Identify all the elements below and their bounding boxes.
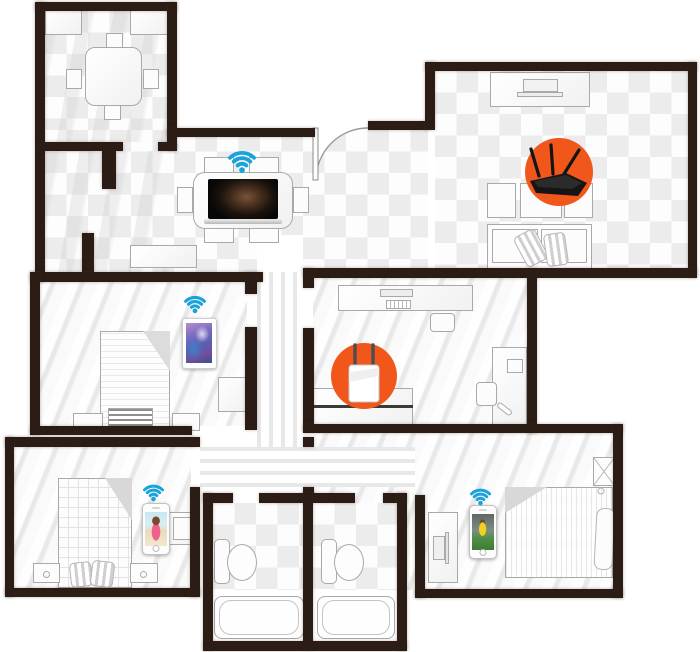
wall xyxy=(303,328,314,432)
wall-stub xyxy=(102,151,116,189)
wifi-icon xyxy=(181,292,209,314)
kitchen-table xyxy=(85,47,142,106)
phone-screen xyxy=(472,514,494,550)
tv-base xyxy=(517,92,563,97)
wall-stub xyxy=(303,437,314,447)
laptop-base xyxy=(204,219,282,224)
dining-chair xyxy=(204,228,234,243)
tablet-screen xyxy=(186,323,212,363)
wall xyxy=(35,2,177,11)
wall xyxy=(158,142,177,151)
wardrobe xyxy=(593,457,615,497)
wall xyxy=(190,437,200,447)
bedroom-desk xyxy=(218,377,246,412)
kitchen-chair xyxy=(143,69,159,89)
wall xyxy=(425,62,697,71)
phone-speaker xyxy=(152,507,160,509)
wall xyxy=(303,493,313,650)
wifi-router[interactable] xyxy=(526,140,592,202)
bed-fold xyxy=(143,331,170,371)
wall xyxy=(5,588,200,597)
office-chair xyxy=(430,313,455,332)
dining-sideboard xyxy=(130,245,197,268)
wall xyxy=(303,268,314,288)
dining-chair xyxy=(293,187,309,213)
wall xyxy=(303,268,697,278)
bathtub-inner xyxy=(219,600,299,635)
wifi-icon xyxy=(224,146,260,174)
wall xyxy=(30,272,263,282)
tv xyxy=(433,536,445,560)
bed-pillow xyxy=(69,561,93,588)
phone-home-button xyxy=(153,545,160,552)
tv-base xyxy=(445,532,449,564)
bathtub-inner xyxy=(322,600,390,635)
wall xyxy=(203,493,213,650)
wall xyxy=(203,641,407,651)
wall xyxy=(203,493,233,503)
phone-screen xyxy=(145,512,167,546)
armchair xyxy=(487,183,516,218)
laptop xyxy=(204,179,282,225)
toilet-bowl xyxy=(334,544,364,581)
wall xyxy=(368,121,428,130)
toilet-bowl xyxy=(227,544,257,581)
wall xyxy=(30,272,40,435)
laptop-screen xyxy=(208,179,278,219)
wall xyxy=(167,128,315,137)
tablet xyxy=(182,318,217,369)
bed-fold xyxy=(505,487,547,513)
kitchen-chair xyxy=(104,105,121,120)
wall xyxy=(415,495,425,598)
dining-chair xyxy=(177,187,193,213)
wall xyxy=(5,437,14,597)
wall xyxy=(38,142,123,151)
wall-stub xyxy=(82,233,94,274)
side-chair xyxy=(476,382,497,406)
sofa-cushion xyxy=(543,232,569,268)
wall xyxy=(303,424,623,433)
wall xyxy=(30,426,192,435)
bed-pillow xyxy=(90,560,116,589)
nightstand-handle xyxy=(43,571,50,578)
hallway-horizontal-floor xyxy=(200,447,415,487)
wall xyxy=(425,62,435,130)
kitchen-counter xyxy=(45,10,82,35)
wall xyxy=(415,589,623,598)
wall xyxy=(190,487,200,597)
smartphone-beach xyxy=(142,503,170,555)
wall xyxy=(245,272,257,294)
wifi-icon xyxy=(467,485,494,506)
wall xyxy=(613,424,623,598)
kitchen-chair xyxy=(66,69,82,89)
dining-chair xyxy=(249,228,279,243)
phone-home-button xyxy=(480,549,487,556)
kitchen-counter xyxy=(130,10,168,35)
wall xyxy=(688,62,697,277)
wall xyxy=(313,493,355,503)
door-swing xyxy=(310,118,374,188)
office-monitor xyxy=(380,289,413,297)
smartphone-soccer xyxy=(469,505,497,559)
phone-speaker xyxy=(479,509,487,511)
wall xyxy=(5,437,192,447)
bed-fold xyxy=(105,478,132,520)
tv xyxy=(523,79,558,92)
office-keyboard xyxy=(386,300,411,309)
wifi-icon xyxy=(140,481,167,502)
kitchen-chair xyxy=(106,33,123,48)
range-extender[interactable] xyxy=(345,342,383,404)
nightstand-handle xyxy=(140,571,147,578)
side-desk-monitor xyxy=(507,359,523,373)
wall xyxy=(245,327,257,430)
floor-plan xyxy=(0,0,700,652)
wall xyxy=(527,268,537,433)
hallway-vertical-floor xyxy=(257,272,303,447)
wall xyxy=(397,493,407,650)
